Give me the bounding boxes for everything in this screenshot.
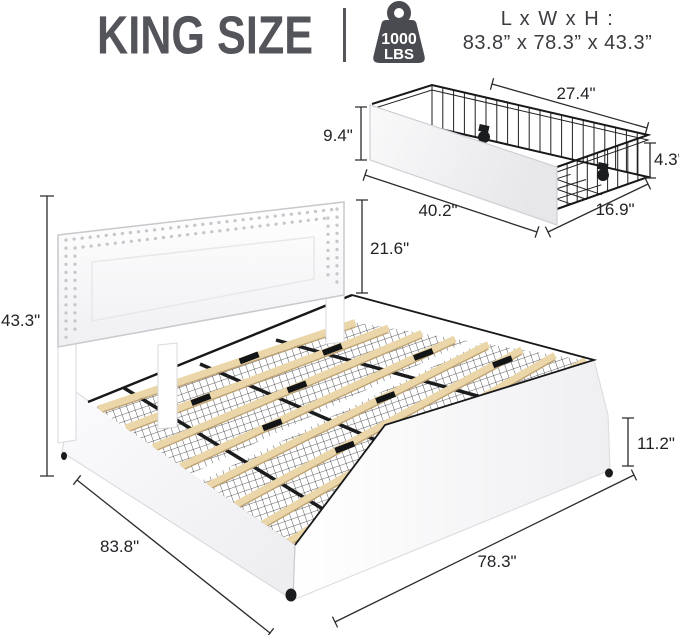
overall-height-line [40,196,54,476]
drawer-top-width-label: 27.4" [556,84,595,103]
weight-capacity-unit: LBS [384,46,414,63]
base-height-line [622,418,634,466]
drawer-wheel-2 [597,169,609,181]
bed-frame-diagram: 43.3" 21.6" 11.2" 83.8" 78.3" [0,190,679,635]
page-title: KING SIZE [97,10,313,64]
drawer-front-height-line [355,107,367,160]
headboard-leg-center [158,343,177,429]
headboard-leg-right [326,294,344,344]
overall-dimensions: L x W x H : 83.8” x 78.3” x 43.3” [440,7,675,55]
dimensions-heading: L x W x H : [440,7,675,31]
bed-foot-right [605,469,613,478]
bed-foot-left [61,452,67,460]
drawer-front-height-label: 9.4" [323,126,353,145]
header-divider [343,8,346,62]
headboard-height-label: 21.6" [370,239,409,258]
drawer-side-height-label: 4.3" [654,150,679,169]
headboard-leg-left [58,341,76,443]
drawer-front-length-label: 40.2" [418,201,457,220]
width-label: 78.3" [477,552,516,571]
bed-foot-front [286,589,297,602]
drawer-side-depth-label: 16.9" [595,200,634,219]
product-dimension-image: KING SIZE 1000 LBS L x W x H : 83.8” x 7… [0,0,679,635]
weight-icon-handle [391,5,408,22]
overall-height-label: 43.3" [1,311,40,330]
weight-capacity-icon: 1000 LBS [363,1,435,67]
dimensions-value: 83.8” x 78.3” x 43.3” [440,31,675,55]
base-height-label: 11.2" [637,434,675,453]
storage-drawer-diagram: 27.4" 9.4" 4.3" 40.2" 16.9" [310,75,679,240]
length-label: 83.8" [100,537,139,556]
